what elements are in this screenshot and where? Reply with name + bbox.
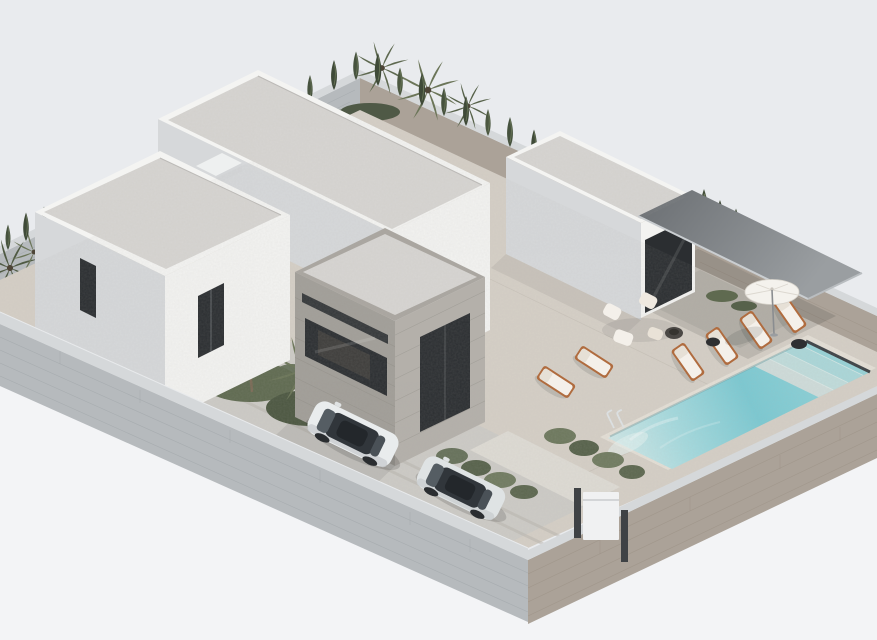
pool-bag xyxy=(791,339,807,349)
planter-hedge xyxy=(706,290,738,302)
gate-panel xyxy=(583,492,619,540)
render-canvas xyxy=(0,0,877,640)
gate-post xyxy=(574,488,581,538)
villa-architectural-render xyxy=(0,0,877,640)
planter-hedge xyxy=(731,301,757,311)
pool-bag xyxy=(706,338,720,347)
gate-post xyxy=(621,510,628,562)
